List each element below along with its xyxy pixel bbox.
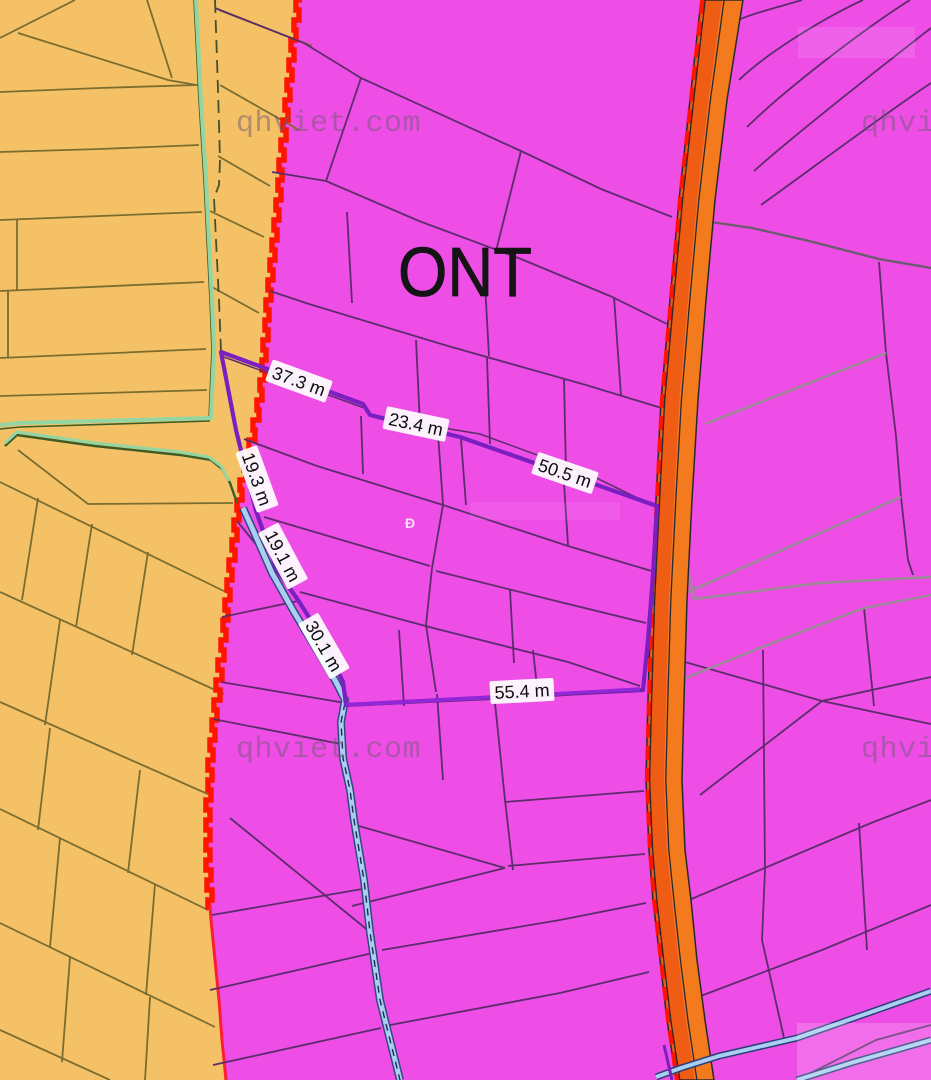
svg-text:qhviet.com: qhviet.com [861,107,931,141]
svg-text:ONT: ONT [398,233,532,311]
svg-text:qhviet.com: qhviet.com [861,733,931,767]
svg-text:Đ: Đ [405,515,415,531]
svg-text:qhviet.com: qhviet.com [236,733,421,767]
svg-text:55.4 m: 55.4 m [494,680,550,703]
svg-text:qhviet.com: qhviet.com [236,107,421,141]
